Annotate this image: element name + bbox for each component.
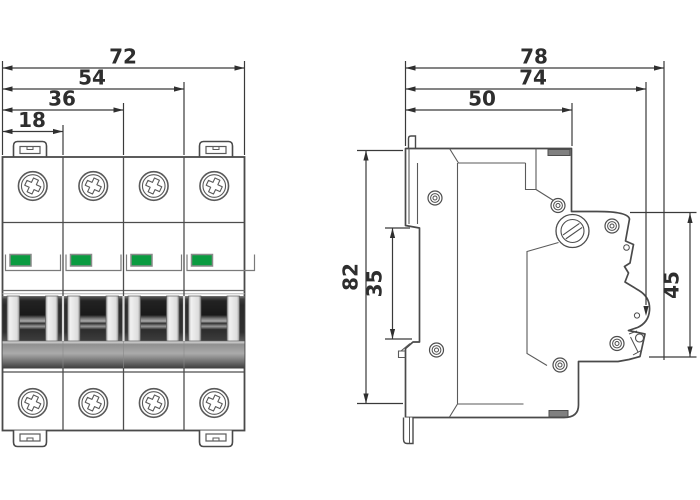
status-indicator-window bbox=[71, 255, 92, 267]
din-clip-foot bbox=[404, 418, 414, 444]
status-indicator-window bbox=[10, 255, 31, 267]
status-indicator-window bbox=[131, 255, 152, 267]
dim-label-36: 36 bbox=[48, 87, 76, 111]
terminal-screw bbox=[18, 389, 47, 418]
slotted-screw bbox=[556, 215, 589, 248]
din-hook-top bbox=[409, 136, 416, 148]
din-clip-bottom-right bbox=[200, 431, 233, 447]
din-clip-bottom-left bbox=[14, 431, 47, 447]
din-clip-top-right bbox=[200, 142, 233, 158]
din-clip-top-left bbox=[14, 142, 47, 158]
toggle-handle-band bbox=[3, 296, 245, 369]
dim-label-45: 45 bbox=[660, 271, 684, 299]
dim-label-18: 18 bbox=[18, 108, 46, 132]
rivet bbox=[430, 343, 444, 357]
rivet bbox=[428, 191, 442, 205]
breaker-dimension-drawing: 72 54 36 18 bbox=[0, 0, 700, 500]
rivet bbox=[610, 337, 624, 351]
status-indicator-window bbox=[192, 255, 213, 267]
side-view: 78 74 50 82 35 45 bbox=[339, 45, 697, 444]
technical-drawing-canvas: 72 54 36 18 bbox=[0, 0, 700, 500]
terminal-screw bbox=[200, 172, 229, 201]
terminal-marking-top bbox=[548, 150, 570, 156]
dim-label-54: 54 bbox=[78, 66, 106, 90]
rivet bbox=[605, 219, 619, 233]
terminal-screw bbox=[139, 172, 168, 201]
terminal-marking-bottom bbox=[549, 411, 568, 418]
terminal-screw bbox=[79, 172, 108, 201]
terminal-screw bbox=[79, 389, 108, 418]
terminal-screw bbox=[139, 389, 168, 418]
terminal-screw bbox=[200, 389, 229, 418]
terminal-screw bbox=[18, 172, 47, 201]
front-view: 72 54 36 18 bbox=[3, 45, 255, 447]
dim-label-74: 74 bbox=[519, 66, 547, 90]
dim-label-50: 50 bbox=[468, 87, 496, 111]
rivet bbox=[551, 199, 565, 213]
rivet bbox=[553, 358, 567, 372]
dim-label-72: 72 bbox=[109, 45, 137, 69]
front-dimensions: 72 54 36 18 bbox=[3, 45, 245, 156]
front-body bbox=[3, 157, 255, 431]
dim-label-35: 35 bbox=[363, 270, 387, 298]
dim-label-82: 82 bbox=[339, 263, 363, 291]
